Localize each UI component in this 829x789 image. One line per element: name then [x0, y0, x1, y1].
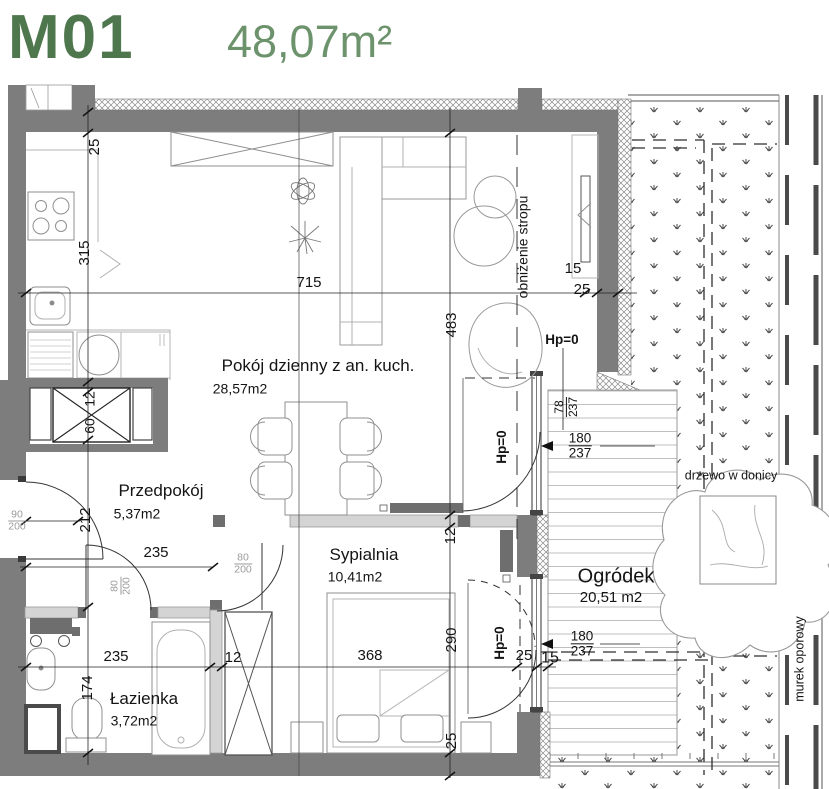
dim-bedroom-door: 180 237	[571, 629, 594, 658]
dim-niche-12: 12	[83, 391, 98, 407]
dim-kitchen-width: 315	[77, 240, 93, 265]
dim-bath-door-h: 200	[121, 577, 133, 595]
neighbour-unit-edge	[26, 85, 95, 110]
room-label-hall: Przedpokój	[118, 482, 203, 500]
garden-top-line	[628, 95, 779, 101]
arrow-bedroom-door	[541, 639, 553, 649]
dim-window-fixed: 78 237	[553, 397, 579, 417]
dim-hall-length: 212	[78, 507, 94, 532]
dim-bath-width: 235	[103, 649, 128, 665]
dim-partition-12: 12	[225, 650, 242, 666]
fridge-box	[77, 332, 121, 378]
coffee-table-small	[474, 176, 516, 218]
wall-top	[8, 110, 630, 132]
dining-chairs	[251, 418, 382, 499]
wall-right-mid	[517, 515, 537, 577]
dim-tv-depth: 15	[565, 261, 582, 277]
annotation-ceiling-drop: obniżenie stropu	[516, 196, 531, 299]
radiator-living	[390, 503, 463, 513]
dim-living-height: 483	[444, 312, 460, 337]
dim-living-door: 180 237	[569, 431, 592, 460]
grass-bottom	[540, 755, 779, 789]
room-label-garden: Ogródek	[578, 567, 655, 588]
dim-entry-door-w: 90	[11, 509, 23, 520]
dim-right-wall: 25	[574, 282, 591, 298]
room-area-bath: 3,72m2	[111, 714, 158, 729]
wall-right-lower	[517, 712, 540, 776]
radiator-bedroom	[500, 530, 513, 572]
dining-table	[285, 402, 347, 515]
floor-plan-drawing	[0, 0, 829, 789]
dim-entry-door: 90 200	[8, 509, 26, 532]
shaft	[26, 706, 59, 752]
dim-window-fixed-h: 237	[566, 397, 580, 417]
room-area-garden: 20,51 m2	[580, 590, 643, 606]
bathroom	[26, 618, 210, 755]
toilet-bowl	[72, 698, 102, 740]
sofa-side	[340, 137, 382, 345]
dim-bedroom-int-door-w: 80	[237, 552, 249, 563]
nightstand-right	[461, 722, 491, 753]
annotation-retaining-wall: murek oporowy	[793, 616, 806, 701]
pillow-left	[337, 715, 379, 742]
dim-bath-door-w: 80	[109, 580, 120, 592]
dim-living-door-w: 180	[569, 431, 592, 445]
dim-wardrobe-60: 60	[83, 418, 98, 434]
nightstand-left	[291, 722, 323, 753]
plant	[289, 178, 321, 254]
annotation-hp0-c: Hp=0	[493, 626, 507, 659]
room-area-living: 28,57m2	[213, 382, 267, 397]
arrow-living-door	[541, 441, 553, 451]
dim-living-door-h: 237	[569, 446, 592, 461]
dim-bed-width: 368	[357, 648, 382, 664]
unit-id: M01	[8, 2, 135, 73]
dim-living-width: 715	[296, 275, 321, 291]
wall-pier	[518, 88, 542, 110]
annotation-tree: drzewo w donicy	[685, 469, 777, 482]
dim-bedroom-int-door: 80 200	[234, 552, 252, 575]
entry-jamb-top	[18, 476, 26, 482]
annotation-hp0-a: Hp=0	[545, 333, 578, 347]
dim-hall-width: 235	[143, 545, 168, 561]
dishwasher	[28, 332, 73, 378]
dim-jamb-25: 25	[516, 648, 533, 664]
floor-plan-page: M01 48,07m² Pokój dzienny z an. kuch. 28…	[0, 0, 829, 789]
radiator-bath	[30, 618, 72, 634]
corner-cabinet	[100, 250, 120, 278]
room-area-bedroom: 10,41m2	[328, 570, 382, 585]
toilet-cistern	[66, 738, 106, 752]
dim-entry-door-h: 200	[8, 521, 26, 533]
unit-area: 48,07m²	[227, 16, 392, 68]
dim-window-fixed-w: 78	[553, 400, 566, 413]
hall-wardrobe	[25, 378, 168, 452]
wall-left-shaft	[0, 380, 23, 480]
dim-top-wall: 25	[87, 139, 103, 156]
tree-planter	[700, 496, 776, 584]
room-label-living: Pokój dzienny z an. kuch.	[222, 357, 415, 375]
kitchen	[26, 132, 333, 380]
dim-bath-height: 174	[80, 675, 96, 700]
pillow-right	[401, 715, 443, 742]
wall-right-upper	[597, 110, 618, 372]
dim-bath-door: 80 200	[109, 577, 132, 595]
dim-bottom-wall: 25	[444, 733, 460, 750]
dim-bed-height: 290	[444, 627, 460, 652]
dim-bedroom-int-door-h: 200	[234, 564, 252, 576]
entry-jamb-bottom	[18, 556, 26, 562]
dim-bedroom-door-h: 237	[571, 644, 594, 659]
dim-jamb-15: 15	[541, 651, 559, 668]
room-label-bath: Łazienka	[110, 690, 178, 708]
dim-living-partition: 12	[443, 528, 459, 545]
room-label-bedroom: Sypialnia	[330, 546, 399, 564]
annotation-hp0-b: Hp=0	[495, 430, 509, 463]
dim-bedroom-door-w: 180	[571, 629, 594, 643]
living-room	[251, 135, 599, 515]
stove	[28, 192, 74, 240]
room-area-hall: 5,37m2	[114, 507, 161, 522]
cabinet	[121, 332, 170, 378]
